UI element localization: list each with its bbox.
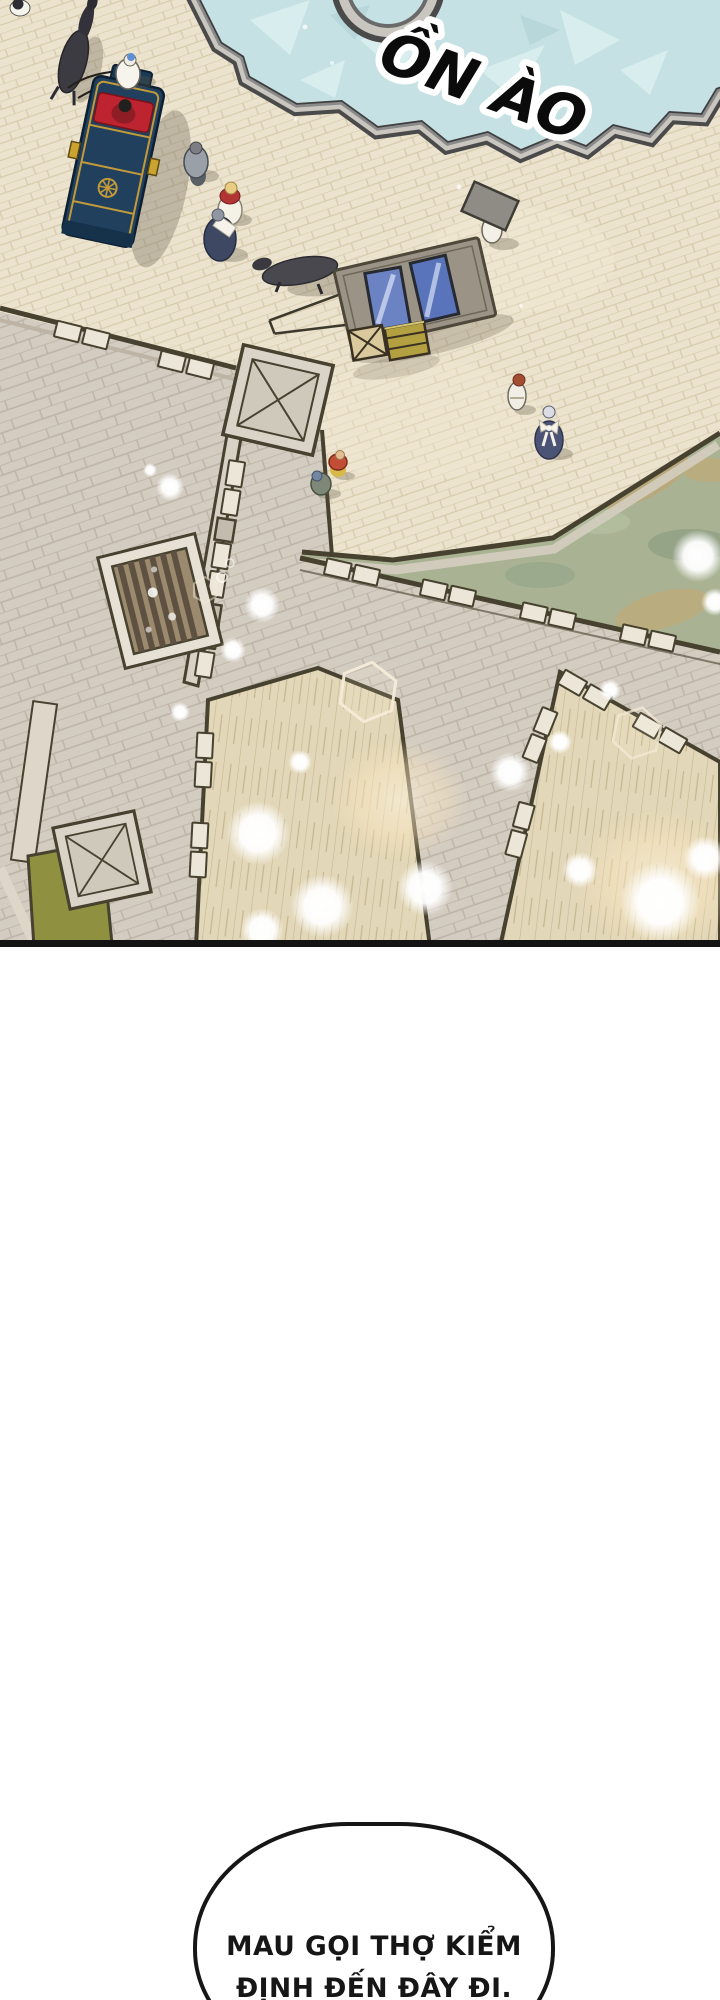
watchtower-roof-2 <box>53 811 151 909</box>
courtyard-scene-illustration: ỒN ÀO <box>0 0 720 947</box>
speech-bubble-line-1: MAU GỌI THỢ KIỂM <box>226 1926 522 1968</box>
panel-border <box>0 940 720 947</box>
character-bystander-top-left <box>10 0 30 16</box>
speech-bubble: MAU GỌI THỢ KIỂM ĐỊNH ĐẾN ĐÂY ĐI. <box>193 1822 555 2000</box>
speech-bubble-line-2: ĐỊNH ĐẾN ĐÂY ĐI. <box>236 1968 512 2000</box>
watchtower-roof-1 <box>223 345 333 455</box>
comic-page: ỒN ÀO MAU GỌI THỢ KIỂM ĐỊNH ĐẾN ĐÂY ĐI. <box>0 0 720 2000</box>
comic-panel: ỒN ÀO <box>0 0 720 947</box>
